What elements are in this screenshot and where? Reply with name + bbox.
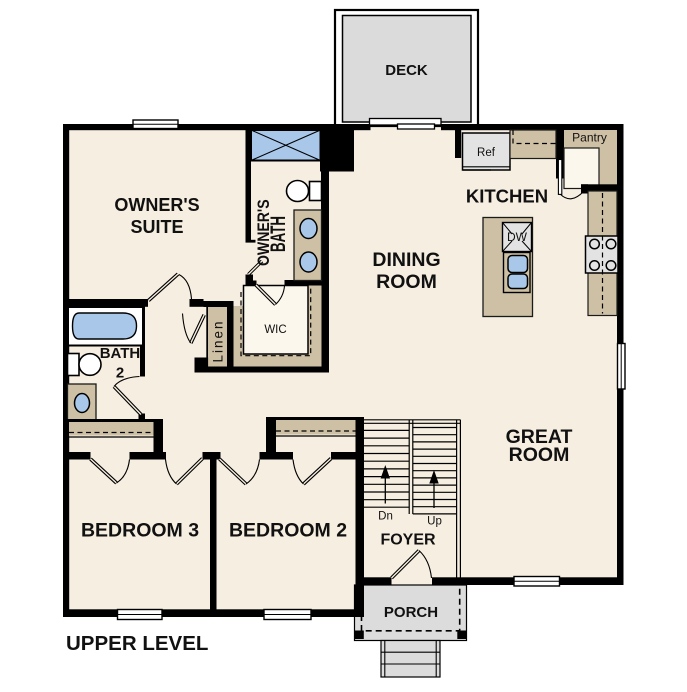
svg-text:UPPER LEVEL: UPPER LEVEL (66, 632, 208, 655)
svg-text:SUITE: SUITE (130, 217, 183, 237)
svg-text:ROOM: ROOM (376, 271, 437, 293)
svg-text:BEDROOM 2: BEDROOM 2 (229, 520, 347, 542)
svg-text:WIC: WIC (264, 324, 286, 336)
svg-text:DW: DW (507, 230, 528, 244)
svg-text:ROOM: ROOM (509, 444, 570, 466)
svg-text:PORCH: PORCH (384, 604, 438, 621)
svg-text:Linen: Linen (211, 319, 226, 362)
svg-text:BATH: BATH (266, 216, 290, 252)
svg-text:Dn: Dn (378, 511, 393, 523)
svg-text:2: 2 (116, 365, 124, 382)
svg-text:Up: Up (427, 516, 442, 528)
svg-text:FOYER: FOYER (380, 532, 436, 549)
svg-text:DINING: DINING (372, 249, 440, 271)
svg-text:BEDROOM 3: BEDROOM 3 (81, 520, 199, 542)
svg-text:BATH: BATH (100, 345, 141, 362)
svg-text:Ref: Ref (477, 147, 496, 159)
svg-text:DECK: DECK (385, 62, 428, 79)
svg-text:Pantry: Pantry (572, 131, 607, 145)
svg-text:KITCHEN: KITCHEN (466, 186, 548, 207)
svg-text:OWNER'S: OWNER'S (114, 195, 199, 215)
